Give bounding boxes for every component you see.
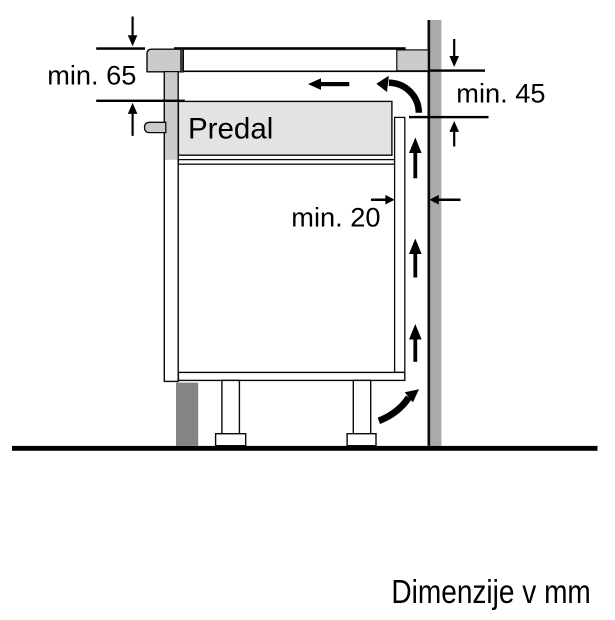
svg-text:Predal: Predal	[188, 112, 273, 145]
svg-text:min. 65: min. 65	[47, 59, 136, 90]
svg-text:min. 20: min. 20	[291, 201, 380, 232]
svg-text:Dimenzije v mm: Dimenzije v mm	[391, 574, 590, 611]
svg-text:min. 45: min. 45	[456, 77, 545, 108]
